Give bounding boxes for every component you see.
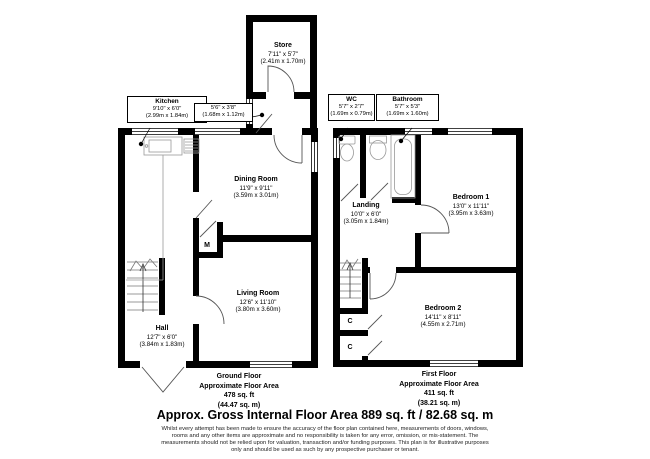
bedroom2-door-arc	[370, 273, 396, 299]
bedroom1-dims-metric: (3.95m x 3.63m)	[424, 210, 518, 218]
kitchen-door-leaf	[196, 200, 212, 218]
wc-name: WC	[329, 96, 374, 104]
wc-dims-imperial: 5'7" x 2'7"	[329, 104, 374, 111]
bathroom-fixtures	[339, 135, 415, 198]
room-label-living: Living Room 12'6" x 11'10" (3.80m x 3.60…	[211, 290, 305, 314]
dining-name: Dining Room	[210, 176, 302, 185]
room-label-lobby: 5'6" x 3'8" (1.68m x 1.12m)	[194, 103, 253, 122]
bathtub-icon	[391, 135, 415, 198]
ground-floor-name: Ground Floor	[158, 372, 320, 382]
meter-cupboard-door-leaf	[200, 221, 216, 237]
disclaimer-line-1: Whilst every attempt has been made to en…	[0, 426, 650, 433]
room-label-bedroom2: Bedroom 2 14'11" x 8'11" (4.55m x 2.71m)	[396, 305, 490, 329]
living-dims-metric: (3.80m x 3.60m)	[211, 306, 305, 314]
first-floor-summary: First Floor Approximate Floor Area 411 s…	[358, 370, 520, 408]
room-label-bedroom1: Bedroom 1 13'0" x 11'11" (3.95m x 3.63m)	[424, 194, 518, 218]
room-label-hall: Hall 12'7" x 6'0" (3.84m x 1.83m)	[116, 325, 208, 349]
room-label-dining: Dining Room 11'9" x 9'11" (3.59m x 3.01m…	[210, 176, 302, 200]
meter-cupboard-label: M	[200, 242, 214, 249]
kitchen-leader-dot	[139, 142, 143, 146]
floorplan-canvas	[0, 0, 650, 459]
sink-icon	[370, 136, 387, 160]
hall-dims-imperial: 12'7" x 6'0"	[116, 334, 208, 342]
bedroom2-name: Bedroom 2	[396, 305, 490, 314]
hall-dims-metric: (3.84m x 1.83m)	[116, 341, 208, 349]
bathroom-dims-metric: (1.69m x 1.60m)	[377, 111, 438, 118]
dining-dims-metric: (3.59m x 3.01m)	[210, 192, 302, 200]
lobby-leader-dot	[260, 113, 264, 117]
lobby-dims-imperial: 5'6" x 3'8"	[195, 105, 252, 112]
bedroom2-dims-metric: (4.55m x 2.71m)	[396, 321, 490, 329]
bathroom-door-leaf	[371, 183, 388, 200]
living-dims-imperial: 12'6" x 11'10"	[211, 299, 305, 307]
dining-dims-imperial: 11'9" x 9'11"	[210, 185, 302, 193]
first-floor-outline	[333, 128, 523, 367]
gross-area-title: Approx. Gross Internal Floor Area 889 sq…	[0, 408, 650, 422]
landing-dims-imperial: 10'0" x 6'0"	[320, 211, 412, 219]
bathroom-name: Bathroom	[377, 96, 438, 104]
dining-door-arc	[274, 135, 302, 163]
lobby-dims-metric: (1.68m x 1.12m)	[195, 112, 252, 119]
wc-dims-metric: (1.69m x 0.79m)	[329, 111, 374, 118]
ground-floor-summary: Ground Floor Approximate Floor Area 478 …	[158, 372, 320, 410]
first-floor-area-caption: Approximate Floor Area	[358, 380, 520, 390]
first-floor-name: First Floor	[358, 370, 520, 380]
cupboard1-label: C	[344, 318, 356, 325]
bedroom1-name: Bedroom 1	[424, 194, 518, 203]
bedroom1-dims-imperial: 13'0" x 11'11"	[424, 203, 518, 211]
cupboard1-door-leaf	[368, 315, 382, 329]
stairs-direction-arrow	[140, 264, 146, 312]
ground-floor-area-caption: Approximate Floor Area	[158, 382, 320, 392]
store-dims-metric: (2.41m x 1.70m)	[237, 58, 329, 66]
room-label-bathroom: Bathroom 5'7" x 5'3" (1.69m x 1.60m)	[376, 94, 439, 121]
ground-floor-area-ft: 478 sq. ft	[158, 391, 320, 401]
cupboard2-label: C	[344, 344, 356, 351]
disclaimer-text: Whilst every attempt has been made to en…	[0, 426, 650, 454]
room-label-store: Store 7'11" x 5'7" (2.41m x 1.70m)	[237, 42, 329, 66]
store-door-arc	[268, 66, 294, 92]
wc-door-leaf	[341, 184, 358, 201]
wc-leader-dot	[339, 137, 343, 141]
landing-dims-metric: (3.05m x 1.84m)	[320, 218, 412, 226]
kitchen-counter	[126, 155, 163, 280]
bathroom-leader-dot	[399, 139, 403, 143]
bathroom-dims-imperial: 5'7" x 5'3"	[377, 104, 438, 111]
floorplan-page: Store 7'11" x 5'7" (2.41m x 1.70m) Kitch…	[0, 0, 650, 459]
hall-name: Hall	[116, 325, 208, 334]
store-dims-imperial: 7'11" x 5'7"	[237, 51, 329, 59]
living-name: Living Room	[211, 290, 305, 299]
disclaimer-line-3: measurements should not be relied upon f…	[0, 440, 650, 447]
first-floor-stairs	[340, 259, 361, 298]
bedroom2-dims-imperial: 14'11" x 8'11"	[396, 314, 490, 322]
landing-name: Landing	[320, 202, 412, 211]
first-floor-area-m: (38.21 sq. m)	[358, 399, 520, 409]
store-name: Store	[237, 42, 329, 51]
disclaimer-line-2: rooms and any other items are approximat…	[0, 433, 650, 440]
disclaimer-line-4: only and should be used as such by any p…	[0, 447, 650, 454]
ground-floor-stairs	[127, 259, 158, 312]
room-label-landing: Landing 10'0" x 6'0" (3.05m x 1.84m)	[320, 202, 412, 226]
first-floor-area-ft: 411 sq. ft	[358, 389, 520, 399]
cupboard2-door-leaf	[368, 341, 382, 355]
room-label-wc: WC 5'7" x 2'7" (1.69m x 0.79m)	[328, 94, 375, 121]
